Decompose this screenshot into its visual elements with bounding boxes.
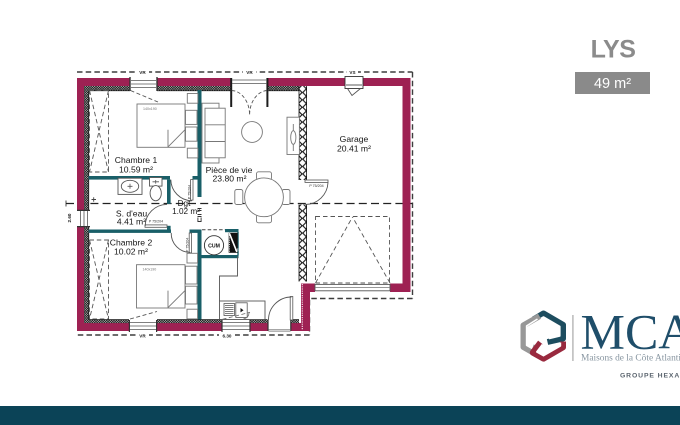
- svg-text:VR: VR: [139, 70, 146, 75]
- svg-text:Chambre 1: Chambre 1: [115, 155, 158, 165]
- svg-text:1.02 m²: 1.02 m²: [172, 207, 200, 216]
- svg-text:CUM: CUM: [208, 243, 220, 249]
- svg-text:Garage: Garage: [340, 134, 369, 144]
- svg-text:VR: VR: [139, 333, 146, 338]
- svg-text:P 75/204: P 75/204: [309, 184, 323, 188]
- svg-text:VS: VS: [349, 70, 355, 75]
- svg-text:23.80 m²: 23.80 m²: [213, 174, 247, 184]
- svg-text:140x190: 140x190: [143, 107, 157, 111]
- svg-text:6.30: 6.30: [223, 333, 232, 338]
- svg-text:20.41 m²: 20.41 m²: [337, 144, 371, 154]
- svg-text:49 m²: 49 m²: [594, 76, 631, 92]
- svg-text:P 75/204: P 75/204: [185, 238, 189, 252]
- svg-text:2.60: 2.60: [67, 213, 72, 222]
- svg-text:10.59 m²: 10.59 m²: [119, 165, 153, 175]
- svg-text:4.41 m²: 4.41 m²: [117, 217, 146, 227]
- svg-text:LYS: LYS: [591, 36, 636, 64]
- svg-text:MCA: MCA: [581, 304, 680, 360]
- svg-text:P 75/204: P 75/204: [188, 185, 192, 199]
- svg-text:BE: BE: [235, 248, 239, 252]
- svg-text:10.02 m²: 10.02 m²: [114, 247, 148, 257]
- svg-text:VR: VR: [246, 70, 253, 75]
- svg-text:GROUPE HEXAOM: GROUPE HEXAOM: [620, 373, 680, 380]
- svg-text:P 75/204: P 75/204: [149, 220, 163, 224]
- svg-text:Maisons de la Côte Atlantique: Maisons de la Côte Atlantique: [581, 354, 680, 364]
- svg-text:140x190: 140x190: [143, 268, 157, 272]
